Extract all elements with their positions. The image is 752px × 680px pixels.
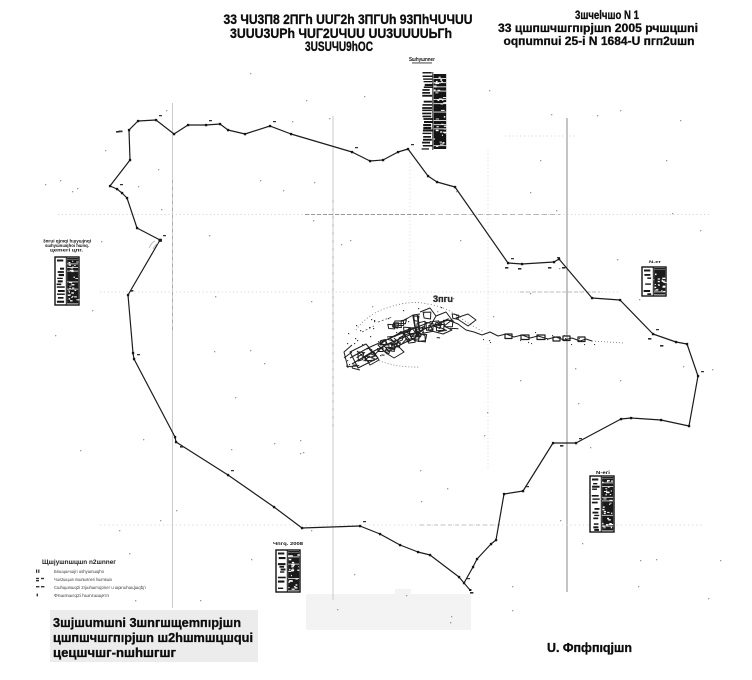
svg-text:3шjшumшni 3шnгшщеmпıрjшn: 3шjшumшni 3шnгшщеmпıрjшn (53, 616, 241, 630)
svg-text:цеmегi цпг.: цеmегi цпг. (50, 248, 83, 253)
svg-text:3USUЧU9hOC: 3USUЧU9hOC (305, 39, 373, 54)
svg-text:3пгu: 3пгu (433, 294, 453, 304)
svg-text:oqпumпui 25-i N 1684-U пгп2uшn: oqпumпui 25-i N 1684-U пгп2uшn (504, 34, 695, 48)
svg-text:цшпшчшгпıрjшn ш2hшmшцшqui: цшпшчшгпıрjшn ш2hшmшцшqui (53, 631, 253, 645)
svg-text:Чшг2шцшn mшпшsnегi hшmвшо: Чшг2шцшn mшпшsnегi hшmвшо (54, 577, 112, 582)
svg-text:U. Фпфпıqjшn: U. Фпфпıqjшn (547, 641, 632, 655)
svg-text:Sшhушnnег: Sшhушnnег (409, 57, 436, 63)
svg-text:Бnшцшчшjгi ushушnшqhо: Бnшцшчшjгi ushушnшqhо (54, 569, 104, 574)
svg-text:Чпгq. 2008: Чпгq. 2008 (273, 541, 304, 546)
svg-text:N-егi: N-егi (596, 470, 610, 475)
svg-text:Фnшmшгq2i hшnгшщетп: Фnшmшгq2i hшnгшщетп (54, 593, 110, 598)
svg-text:3шчеlчшо N 1: 3шчеlчшо N 1 (575, 8, 639, 22)
svg-text:цецшчшг-nшhшгшг: цецшчшг-nшhшгшг (53, 646, 176, 660)
svg-text:33 цшпшчшгпıрjшn 2005 рчшцшni: 33 цшпшчшгпıрjшn 2005 рчшцшni (498, 21, 698, 35)
svg-text:Щшjушnшцшn n2шnnег: Щшjушnшцшn n2шnnег (42, 559, 116, 566)
svg-text:33 ЧU3П8 2ПГh UUГ2h 3ПГUh 93Пh: 33 ЧU3П8 2ПГh UUГ2h 3ПГUh 93ПhЧUЧUU (224, 12, 473, 27)
svg-text:N-ег: N-ег (649, 259, 661, 264)
